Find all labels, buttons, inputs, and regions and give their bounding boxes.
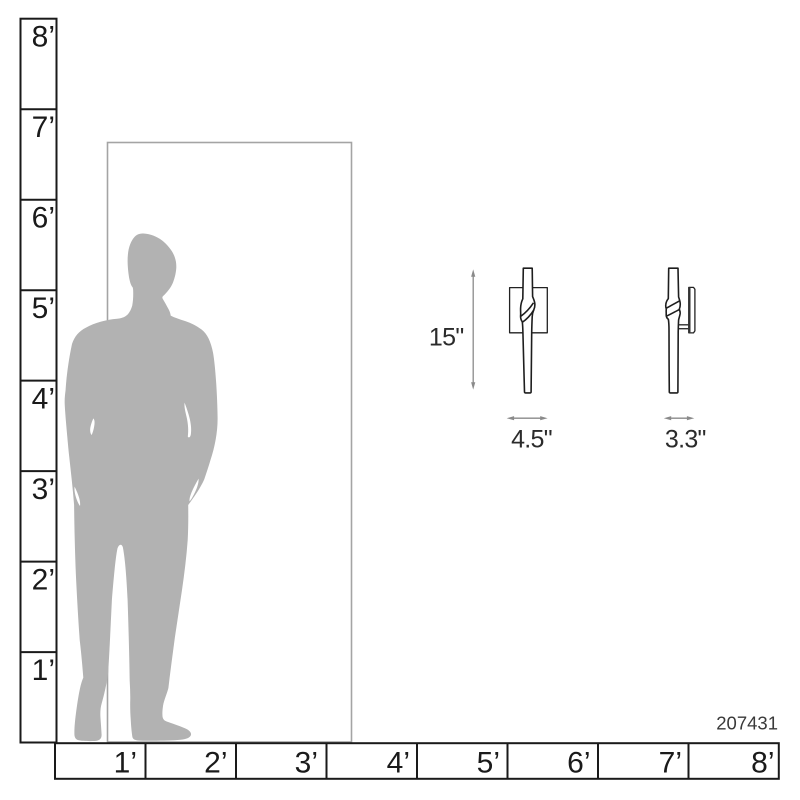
svg-text:3’: 3’ [295,747,318,780]
svg-text:5’: 5’ [477,747,500,780]
svg-text:5’: 5’ [32,292,55,325]
svg-text:6’: 6’ [567,747,590,780]
svg-text:2’: 2’ [204,747,227,780]
svg-text:8’: 8’ [32,21,55,54]
svg-text:3.3": 3.3" [665,426,706,454]
svg-text:15": 15" [429,324,464,352]
svg-text:7’: 7’ [659,747,682,780]
svg-text:2’: 2’ [32,564,55,597]
svg-text:1’: 1’ [32,654,55,687]
svg-text:6’: 6’ [32,202,55,235]
svg-text:1’: 1’ [114,747,137,780]
svg-text:4’: 4’ [387,747,410,780]
svg-text:4.5": 4.5" [511,426,552,454]
svg-text:8’: 8’ [751,747,774,780]
svg-text:3’: 3’ [32,473,55,506]
svg-text:7’: 7’ [32,111,55,144]
svg-text:4’: 4’ [32,383,55,416]
svg-text:207431: 207431 [716,712,778,733]
